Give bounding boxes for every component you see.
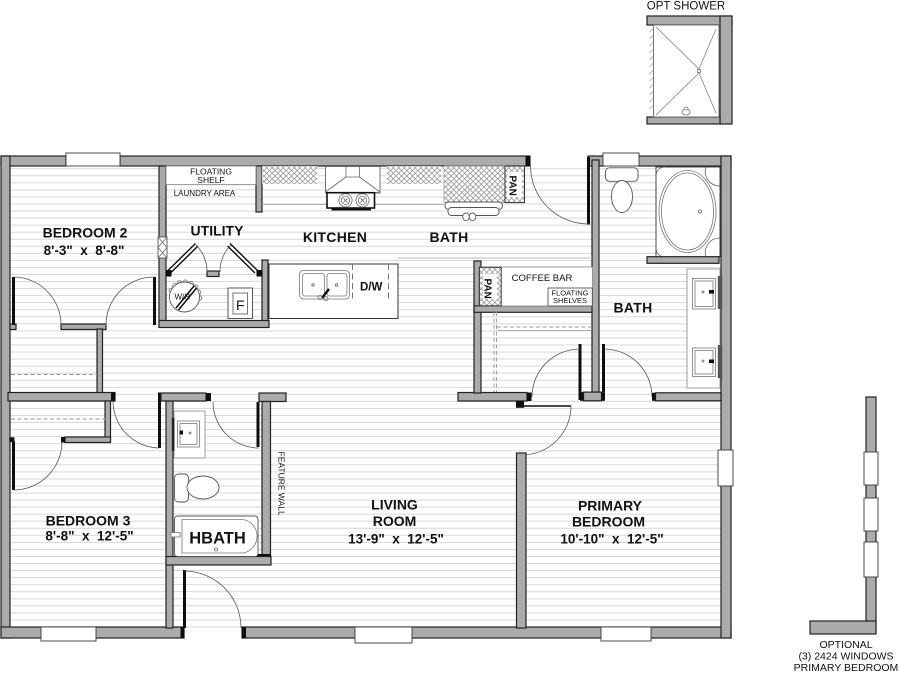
svg-text:8'-8" x 12'-5": 8'-8" x 12'-5" <box>45 529 133 544</box>
svg-text:W/H: W/H <box>175 293 191 302</box>
svg-text:F: F <box>236 297 245 313</box>
svg-text:13'-9" x 12'-5": 13'-9" x 12'-5" <box>348 532 444 547</box>
svg-text:PAN: PAN <box>507 176 518 196</box>
svg-text:COFFEE BAR: COFFEE BAR <box>512 273 573 284</box>
svg-text:LIVING: LIVING <box>371 497 418 513</box>
svg-text:OPTIONAL: OPTIONAL <box>819 639 872 651</box>
svg-text:D/W: D/W <box>360 282 383 294</box>
svg-text:BEDROOM 2: BEDROOM 2 <box>43 225 128 241</box>
svg-text:10'-10" x 12'-5": 10'-10" x 12'-5" <box>560 532 663 547</box>
svg-text:FEATURE WALL: FEATURE WALL <box>277 452 287 517</box>
svg-text:SHELF: SHELF <box>197 175 224 185</box>
svg-text:KITCHEN: KITCHEN <box>303 229 367 245</box>
svg-text:BEDROOM 3: BEDROOM 3 <box>46 513 131 529</box>
svg-text:(3) 2424 WINDOWS: (3) 2424 WINDOWS <box>798 651 893 663</box>
svg-text:SHELVES: SHELVES <box>553 296 587 305</box>
svg-text:PAN: PAN <box>482 279 493 299</box>
svg-text:BEDROOM: BEDROOM <box>572 514 645 530</box>
svg-text:HBATH: HBATH <box>189 530 246 548</box>
svg-text:BATH: BATH <box>429 229 468 245</box>
svg-text:LAUNDRY AREA: LAUNDRY AREA <box>174 189 236 198</box>
svg-text:OPT SHOWER: OPT SHOWER <box>647 1 725 13</box>
svg-text:PRIMARY: PRIMARY <box>578 498 643 514</box>
svg-text:PRIMARY BEDROOM: PRIMARY BEDROOM <box>794 662 899 674</box>
svg-text:8'-3" x 8'-8": 8'-3" x 8'-8" <box>44 243 125 258</box>
svg-text:UTILITY: UTILITY <box>191 223 245 239</box>
svg-text:BATH: BATH <box>613 299 652 315</box>
svg-text:ROOM: ROOM <box>373 513 417 529</box>
